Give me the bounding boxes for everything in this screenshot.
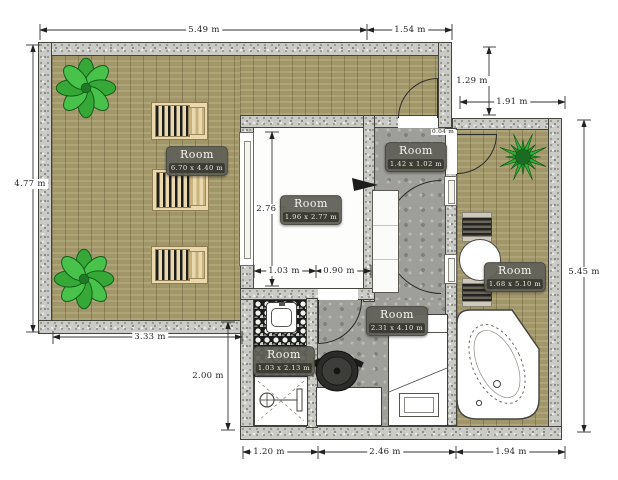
- sink-tap-icon: [279, 302, 285, 306]
- balcony-door-opening: [446, 130, 457, 174]
- lounger-slats: [155, 105, 190, 137]
- bedroom-window-frame: [244, 141, 251, 259]
- sun-lounger-1[interactable]: [151, 102, 208, 140]
- room-size: 6.70 x 4.40 m: [169, 163, 225, 173]
- room-name: Room: [256, 349, 312, 362]
- room-label-hallway[interactable]: Room 1.42 x 1.02 m: [385, 142, 447, 172]
- dim-bedroom-width-left: 1.03 m: [266, 266, 302, 276]
- dim-left-side: 4.77 m: [12, 179, 48, 189]
- dim-bedroom-width-right: 0.90 m: [321, 266, 357, 276]
- wall-strip-right: [438, 42, 452, 128]
- dim-right-v-small: 1.29 m: [454, 76, 490, 86]
- balcony-window-2-frame: [448, 258, 455, 282]
- dim-top-small: 1.54 m: [392, 25, 428, 35]
- wall-right-outer: [548, 118, 562, 440]
- wall-top: [38, 42, 452, 56]
- room-name: Room: [369, 309, 425, 322]
- room-name: Room: [169, 149, 225, 162]
- bedroom-window: [239, 132, 254, 266]
- sun-lounger-3[interactable]: [151, 246, 208, 284]
- lounger-slats: [155, 249, 190, 281]
- dim-right-h-small: 1.91 m: [494, 97, 530, 107]
- room-label-bedroom[interactable]: Room 1.96 x 2.77 m: [280, 195, 342, 225]
- dim-top-main: 5.49 m: [186, 25, 222, 35]
- dim-wall-gap: 0.04 m: [431, 129, 455, 135]
- dim-terrace-width: 3.33 m: [132, 332, 168, 342]
- sink-basin: [271, 308, 292, 327]
- wall-bottom: [240, 426, 562, 440]
- room-size: 1.03 x 2.13 m: [256, 363, 312, 373]
- room-size: 1.42 x 1.02 m: [388, 159, 444, 169]
- shower[interactable]: [254, 376, 308, 426]
- room-name: Room: [487, 265, 543, 278]
- room-label-bathroom[interactable]: Room 1.03 x 2.13 m: [253, 346, 315, 376]
- floor-terrace: [52, 56, 240, 320]
- room-name: Room: [283, 198, 339, 211]
- room-label-kitchen[interactable]: Room 2.31 x 4.10 m: [366, 306, 428, 336]
- lounger-slats: [156, 172, 191, 208]
- room-size: 1.68 x 5.10 m: [487, 279, 543, 289]
- room-label-terrace[interactable]: Room 6.70 x 4.40 m: [166, 146, 228, 176]
- lounger-footrest: [188, 107, 205, 135]
- bathroom-sink[interactable]: [266, 302, 297, 333]
- dim-bottom-middle: 2.46 m: [367, 447, 403, 457]
- wall-balcony-top: [452, 118, 562, 130]
- bed-foot-box: [399, 393, 439, 417]
- dim-bottom-right: 1.94 m: [493, 447, 529, 457]
- kitchen-counter[interactable]: [316, 387, 382, 426]
- dim-right-side: 5.45 m: [566, 267, 602, 277]
- dim-bottom-left: 1.20 m: [251, 447, 287, 457]
- wardrobe[interactable]: [372, 190, 399, 293]
- room-size: 2.31 x 4.10 m: [369, 323, 425, 333]
- room-name: Room: [388, 145, 444, 158]
- room-label-balcony[interactable]: Room 1.68 x 5.10 m: [484, 262, 546, 292]
- balcony-window-2: [444, 254, 457, 284]
- floor-plan: Room 6.70 x 4.40 m Room 1.96 x 2.77 m Ro…: [0, 0, 618, 480]
- lounger-footrest: [188, 251, 205, 279]
- balcony-window-1: [444, 176, 457, 206]
- kitchen-door-opening: [318, 289, 358, 300]
- dim-bath-height: 2.00 m: [190, 371, 226, 381]
- balcony-window-1-frame: [448, 180, 455, 204]
- room-size: 1.96 x 2.77 m: [283, 212, 339, 222]
- lounger-footrest: [189, 174, 206, 206]
- balcony-bench-1[interactable]: [462, 212, 492, 242]
